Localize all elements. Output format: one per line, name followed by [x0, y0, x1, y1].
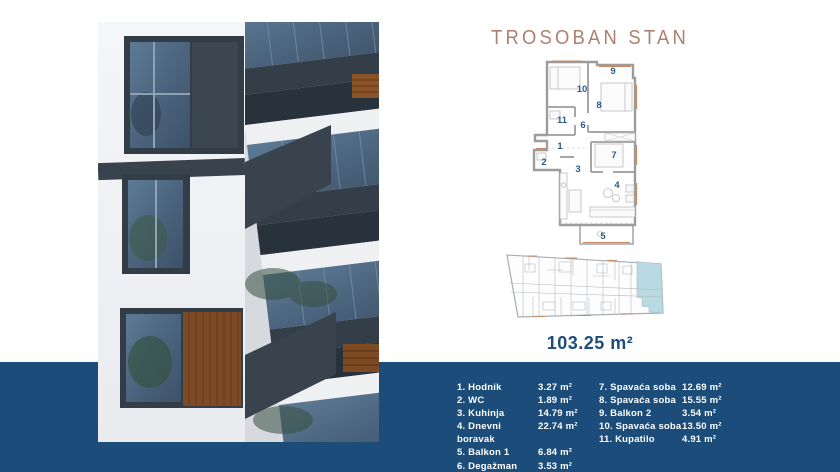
room-name: 10. Spavaća soba — [599, 420, 682, 433]
floor-plan: 1234567891011 — [500, 57, 680, 247]
building-photo — [98, 22, 379, 442]
room-area: 6.84 m² — [538, 446, 572, 459]
room-name: 6. Degažman — [457, 460, 538, 472]
room-number: 1 — [557, 141, 563, 152]
balcony-1-outline — [580, 225, 633, 244]
room-number: 2 — [541, 157, 546, 168]
room-name: 1. Hodnik — [457, 381, 538, 394]
room-number: 9 — [610, 66, 615, 77]
legend-row: 4. Dnevni boravak22.74 m² — [457, 420, 578, 446]
room-number: 7 — [611, 150, 616, 161]
window-top — [124, 36, 244, 154]
room-area: 14.79 m² — [538, 407, 578, 420]
room-area: 3.27 m² — [538, 381, 572, 394]
legend-row: 3. Kuhinja14.79 m² — [457, 407, 578, 420]
room-name: 5. Balkon 1 — [457, 446, 538, 459]
room-area: 4.91 m² — [682, 433, 716, 446]
window-middle — [122, 174, 190, 274]
room-number: 3 — [575, 164, 580, 175]
room-name: 3. Kuhinja — [457, 407, 538, 420]
site-plan — [503, 250, 673, 325]
room-area: 3.53 m² — [538, 460, 572, 472]
total-area: 103.25 m² — [380, 333, 800, 354]
room-name: 8. Spavaća soba — [599, 394, 682, 407]
room-name: 9. Balkon 2 — [599, 407, 682, 420]
room-name: 2. WC — [457, 394, 538, 407]
legend-row: 6. Degažman3.53 m² — [457, 460, 578, 472]
room-name: 11. Kupatilo — [599, 433, 682, 446]
room-area: 3.54 m² — [682, 407, 716, 420]
room-area: 12.69 m² — [682, 381, 722, 394]
brochure-page: TROSOBAN STAN — [0, 0, 840, 472]
room-name: 4. Dnevni boravak — [457, 420, 538, 446]
room-area: 22.74 m² — [538, 420, 578, 446]
room-area: 13.50 m² — [682, 420, 722, 433]
legend-row: 2. WC1.89 m² — [457, 394, 578, 407]
room-number: 10 — [577, 84, 588, 95]
room-number: 11 — [557, 115, 568, 126]
legend-row: 9. Balkon 23.54 m² — [599, 407, 722, 420]
room-number: 8 — [596, 100, 601, 111]
legend-left: 1. Hodnik3.27 m²2. WC1.89 m²3. Kuhinja14… — [457, 381, 578, 472]
legend-row: 11. Kupatilo4.91 m² — [599, 433, 722, 446]
wood-shutter — [183, 312, 241, 406]
room-area: 1.89 m² — [538, 394, 572, 407]
legend-row: 5. Balkon 16.84 m² — [457, 446, 578, 459]
legend-row: 8. Spavaća soba15.55 m² — [599, 394, 722, 407]
room-area: 15.55 m² — [682, 394, 722, 407]
building-photo-art — [98, 22, 379, 442]
room-number: 5 — [600, 231, 606, 242]
window-bottom — [120, 308, 243, 408]
room-number: 6 — [580, 120, 585, 131]
legend-row: 7. Spavaća soba12.69 m² — [599, 381, 722, 394]
room-name: 7. Spavaća soba — [599, 381, 682, 394]
room-number: 4 — [614, 180, 620, 191]
legend-row: 1. Hodnik3.27 m² — [457, 381, 578, 394]
page-title: TROSOBAN STAN — [397, 27, 783, 50]
legend-row: 10. Spavaća soba13.50 m² — [599, 420, 722, 433]
legend-right: 7. Spavaća soba12.69 m²8. Spavaća soba15… — [599, 381, 722, 446]
